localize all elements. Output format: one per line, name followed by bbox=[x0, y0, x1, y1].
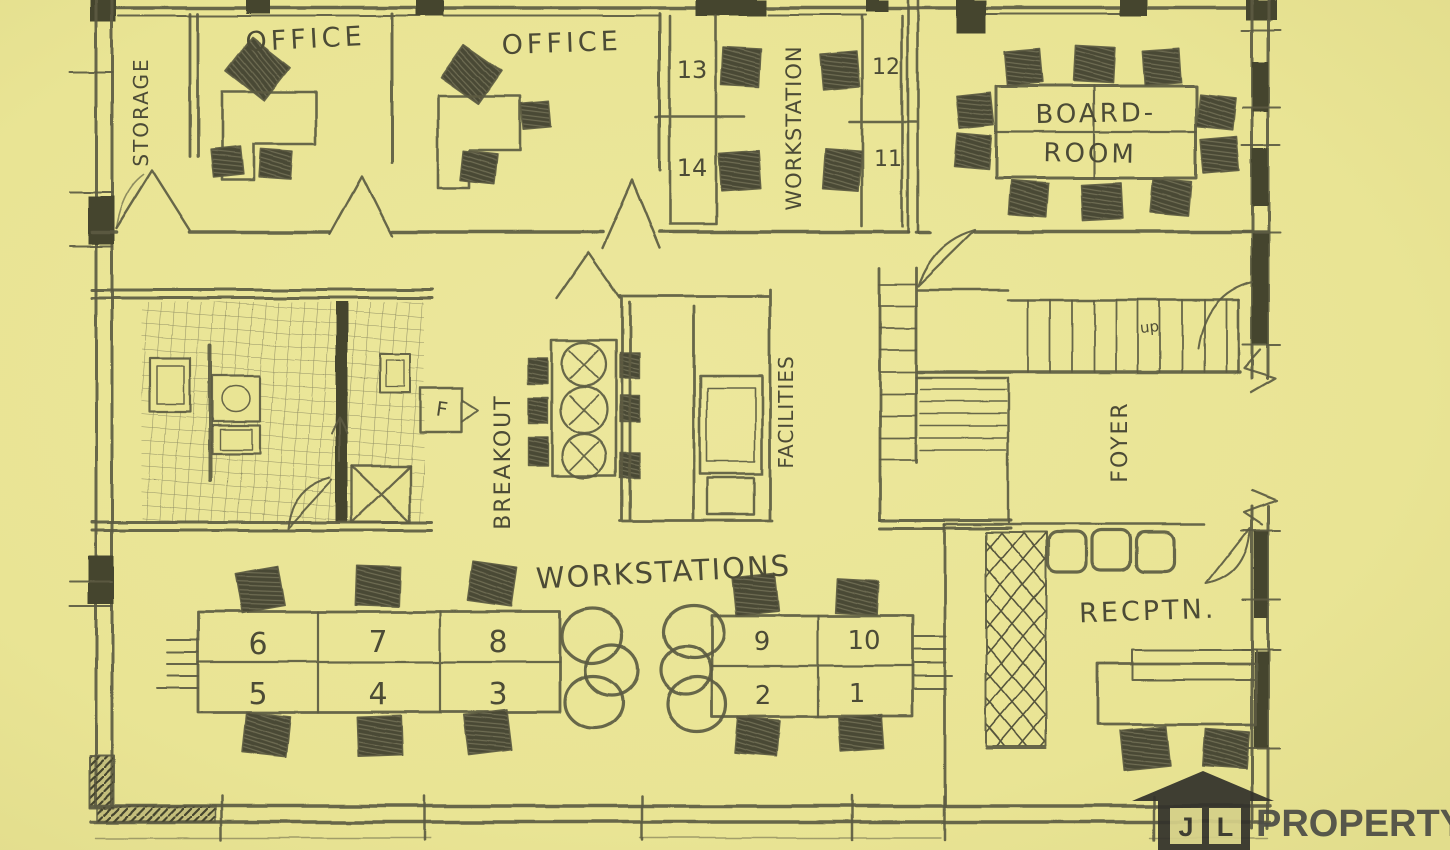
desk-6: 6 bbox=[248, 627, 267, 662]
desk-10: 10 bbox=[847, 626, 880, 656]
desk-13: 13 bbox=[677, 56, 708, 84]
desk-1: 1 bbox=[849, 679, 866, 709]
desk-2: 2 bbox=[755, 681, 772, 711]
label-workstation-column: WORKSTATION bbox=[782, 45, 806, 210]
desk-5: 5 bbox=[248, 677, 267, 712]
label-office-1: OFFICE bbox=[245, 21, 367, 58]
desk-12: 12 bbox=[872, 55, 900, 80]
label-boardroom-line2: ROOM bbox=[1043, 138, 1137, 170]
logo-initial-l: L bbox=[1217, 812, 1234, 842]
label-office-2: OFFICE bbox=[501, 26, 622, 61]
desk-11: 11 bbox=[874, 147, 902, 172]
logo-brand-text: PROPERTY bbox=[1256, 803, 1450, 845]
desk-9: 9 bbox=[754, 627, 771, 657]
label-breakout: BREAKOUT bbox=[491, 394, 516, 529]
desk-3: 3 bbox=[488, 677, 507, 712]
desk-14: 14 bbox=[677, 154, 708, 182]
desk-4: 4 bbox=[368, 677, 387, 712]
label-boardroom-line1: BOARD- bbox=[1035, 98, 1156, 130]
label-facilities: FACILITIES bbox=[774, 355, 798, 468]
label-foyer: FOYER bbox=[1108, 401, 1133, 482]
logo-initial-j: J bbox=[1178, 812, 1193, 842]
bathroom-block bbox=[92, 290, 432, 530]
desk-8: 8 bbox=[488, 625, 507, 660]
label-storage: STORAGE bbox=[129, 57, 153, 166]
floorplan-sketch-page: STORAGE OFFICE OFFICE WORKSTATION BOARD-… bbox=[0, 0, 1450, 850]
label-stairs-up: up bbox=[1139, 317, 1160, 337]
desk-7: 7 bbox=[368, 625, 387, 660]
floorplan-sketch: STORAGE OFFICE OFFICE WORKSTATION BOARD-… bbox=[0, 0, 1450, 850]
label-reception: RECPTN. bbox=[1079, 594, 1217, 630]
